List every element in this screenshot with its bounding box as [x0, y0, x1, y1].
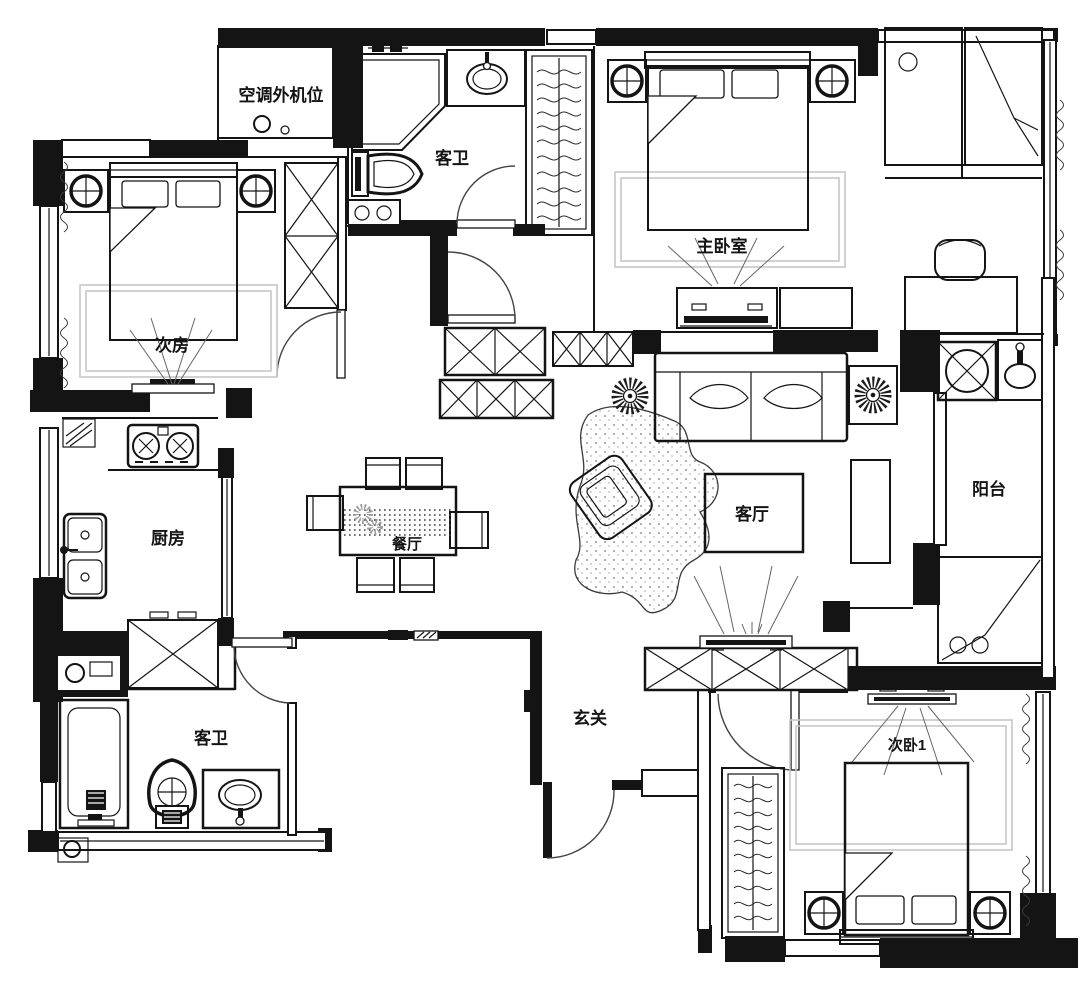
room-secondary — [61, 162, 339, 393]
nightstand-icon — [810, 60, 855, 102]
room-labels: 空调外机位 客卫 主卧室 次房 厨房 餐厅 客厅 阳台 客卫 玄关 次卧1 — [151, 85, 1006, 754]
label-living: 客厅 — [734, 504, 769, 524]
door-corridor — [448, 252, 515, 323]
dining-chair-icon — [400, 558, 434, 592]
label-dining: 餐厅 — [392, 535, 422, 553]
vent-icon — [63, 419, 95, 447]
drain-icon — [254, 116, 270, 132]
label-secondary-bedroom-1: 次卧1 — [888, 736, 926, 754]
toilet-icon — [352, 152, 422, 196]
label-ac-outdoor-unit: 空调外机位 — [239, 85, 324, 105]
floor-plan-page: 空调外机位 客卫 主卧室 次房 厨房 餐厅 客厅 阳台 客卫 玄关 次卧1 — [0, 0, 1080, 990]
bathtub-icon — [60, 700, 128, 828]
wardrobe-hangers-icon — [722, 768, 784, 938]
kitchen-cabinet-icon — [128, 612, 218, 688]
door-bathroom-bottom — [232, 638, 292, 703]
door-bathroom-top — [457, 166, 515, 228]
label-balcony: 阳台 — [972, 479, 1006, 499]
plant-box-icon — [849, 366, 897, 424]
room-secondary-bedroom-1 — [722, 686, 1030, 944]
closet-icon — [885, 28, 962, 165]
room-master-bedroom — [608, 28, 1064, 333]
door-secondary-bedroom-1 — [718, 690, 799, 770]
cabinet-x-icon — [440, 380, 553, 418]
cabinet-x-icon — [445, 328, 545, 375]
storage-cabinets — [440, 328, 633, 418]
label-foyer: 玄关 — [573, 708, 607, 728]
desk-icon — [905, 240, 1017, 333]
cabinet-x-icon — [553, 332, 633, 366]
shower-icon — [352, 44, 445, 150]
washbasin-icon — [203, 770, 279, 828]
mirror-cabinet-icon — [965, 28, 1042, 165]
bath-cabinet-icon — [346, 200, 400, 226]
washbasin-icon — [447, 50, 525, 106]
dining-chair-icon — [357, 558, 394, 592]
kitchen-sink-icon — [60, 514, 106, 598]
balcony-sink-icon — [998, 340, 1042, 400]
label-bathroom-bottom: 客卫 — [193, 728, 228, 748]
room-living — [566, 353, 897, 690]
dining-chair-icon — [406, 458, 442, 489]
room-dining — [307, 458, 488, 592]
nightstand-icon — [805, 892, 843, 934]
nightstand-icon — [237, 170, 275, 212]
toilet-icon — [149, 760, 195, 828]
label-master-bedroom: 主卧室 — [697, 236, 748, 256]
room-balcony — [938, 340, 1042, 663]
bed-secondary-icon — [110, 163, 237, 340]
balcony-cabinet-icon — [938, 557, 1042, 663]
label-bathroom-top: 客卫 — [434, 148, 469, 168]
nightstand-icon — [64, 170, 108, 212]
dining-chair-icon — [307, 496, 343, 530]
door-entry — [547, 790, 614, 858]
floor-plan-drawing: 空调外机位 客卫 主卧室 次房 厨房 餐厅 客厅 阳台 客卫 玄关 次卧1 — [0, 0, 1080, 990]
tv-cabinet-icon — [677, 288, 852, 328]
nightstand-icon — [608, 60, 646, 102]
plant-icon — [617, 383, 643, 409]
room-bathroom-top — [346, 44, 525, 226]
tv-icon — [132, 379, 214, 393]
door-secondary-room — [277, 310, 345, 378]
nightstand-icon — [970, 892, 1010, 934]
dining-chair-icon — [366, 458, 400, 489]
wardrobe-hall-icon — [526, 50, 592, 235]
tv-console-icon — [645, 648, 857, 690]
label-kitchen: 厨房 — [151, 528, 185, 548]
doors — [232, 166, 799, 858]
label-secondary-room: 次房 — [155, 335, 189, 355]
bed-master-icon — [645, 52, 810, 230]
washing-machine-icon — [938, 342, 996, 400]
side-table-icon — [851, 460, 890, 563]
wardrobe-icon — [285, 163, 338, 308]
tv-icon — [700, 636, 792, 650]
stove-icon — [128, 425, 198, 467]
bed-secondary-1-icon — [840, 763, 973, 944]
